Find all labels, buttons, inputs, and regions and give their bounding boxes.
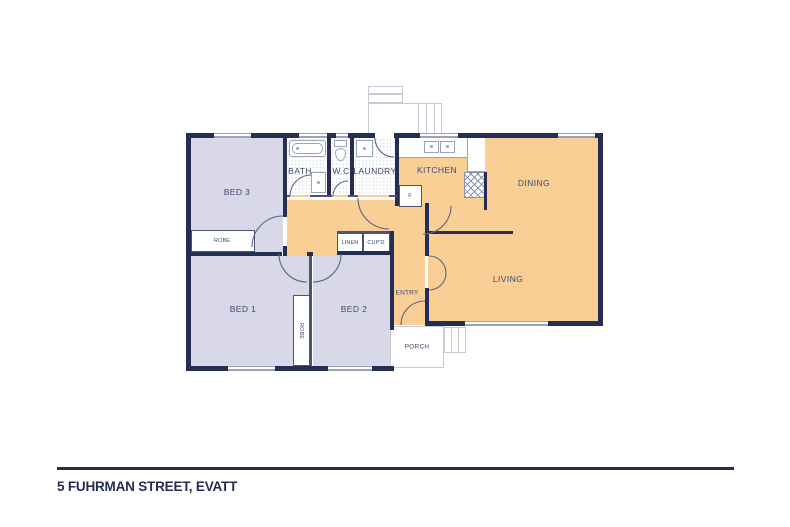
label-cupboard: CUP'D xyxy=(367,240,384,246)
laundry-door-opening xyxy=(358,195,389,197)
window xyxy=(336,133,348,138)
window xyxy=(214,133,251,138)
label-bed2: BED 2 xyxy=(341,304,368,314)
wall-segment xyxy=(283,246,287,256)
hot-water-unit-outline xyxy=(368,94,403,103)
rear-landing-outline xyxy=(368,103,442,134)
wall-segment xyxy=(283,133,287,217)
kitchen-bench-return xyxy=(467,138,485,172)
rear-steps-line xyxy=(434,103,435,134)
label-laundry: LAUNDRY xyxy=(353,166,396,176)
label-bath: BATH xyxy=(288,166,312,176)
label-bed1: BED 1 xyxy=(230,304,257,314)
laundry-tub-drain xyxy=(363,147,366,150)
label-dining: DINING xyxy=(518,178,550,188)
window xyxy=(228,366,275,371)
wall-segment xyxy=(337,251,390,255)
label-kitchen: KITCHEN xyxy=(417,165,457,175)
label-porch: PORCH xyxy=(405,344,429,351)
rear-steps-line xyxy=(426,103,427,134)
wall-segment xyxy=(327,133,331,197)
sink-drain xyxy=(446,145,449,148)
label-robe-beds12: ROBE xyxy=(298,323,304,339)
label-linen: LINEN xyxy=(342,240,359,246)
wall-segment xyxy=(425,288,429,321)
wall-segment xyxy=(337,231,390,233)
bath-door-opening xyxy=(290,195,310,197)
wall-segment xyxy=(598,133,603,326)
wall-segment xyxy=(309,256,312,366)
wall-segment xyxy=(428,231,513,234)
sink-drain xyxy=(430,145,433,148)
label-entry: ENTRY xyxy=(396,290,419,297)
stove xyxy=(464,172,485,198)
label-robe-bed3: ROBE xyxy=(214,238,230,244)
floorplan-page: BED 3 BATH W.C LAUNDRY KITCHEN DINING LI… xyxy=(0,0,790,527)
laundry-door-opening xyxy=(375,133,394,138)
label-fridge: F xyxy=(408,193,411,199)
vanity-basin-dot xyxy=(317,181,320,184)
wall-segment xyxy=(425,203,429,256)
window xyxy=(328,366,372,371)
window xyxy=(465,321,548,326)
wc-door-opening xyxy=(332,195,348,197)
bathtub-drain xyxy=(296,147,299,150)
hot-water-unit-outline xyxy=(368,86,403,94)
porch-steps-line xyxy=(458,327,459,353)
address-title: 5 FUHRMAN STREET, EVATT xyxy=(57,479,237,494)
wall-segment xyxy=(484,172,487,210)
wall-segment xyxy=(186,252,282,256)
window xyxy=(420,133,458,138)
porch-steps-line xyxy=(451,327,452,353)
label-living: LIVING xyxy=(493,274,523,284)
label-wc: W.C xyxy=(332,166,349,176)
window xyxy=(299,133,327,138)
wall-segment xyxy=(350,133,354,197)
rear-steps-line xyxy=(418,103,419,134)
wall-segment xyxy=(390,231,394,330)
toilet-cistern xyxy=(334,140,347,147)
label-bed3: BED 3 xyxy=(224,187,251,197)
window xyxy=(558,133,595,138)
porch-steps-outline xyxy=(444,327,466,353)
divider-rule xyxy=(57,467,734,470)
